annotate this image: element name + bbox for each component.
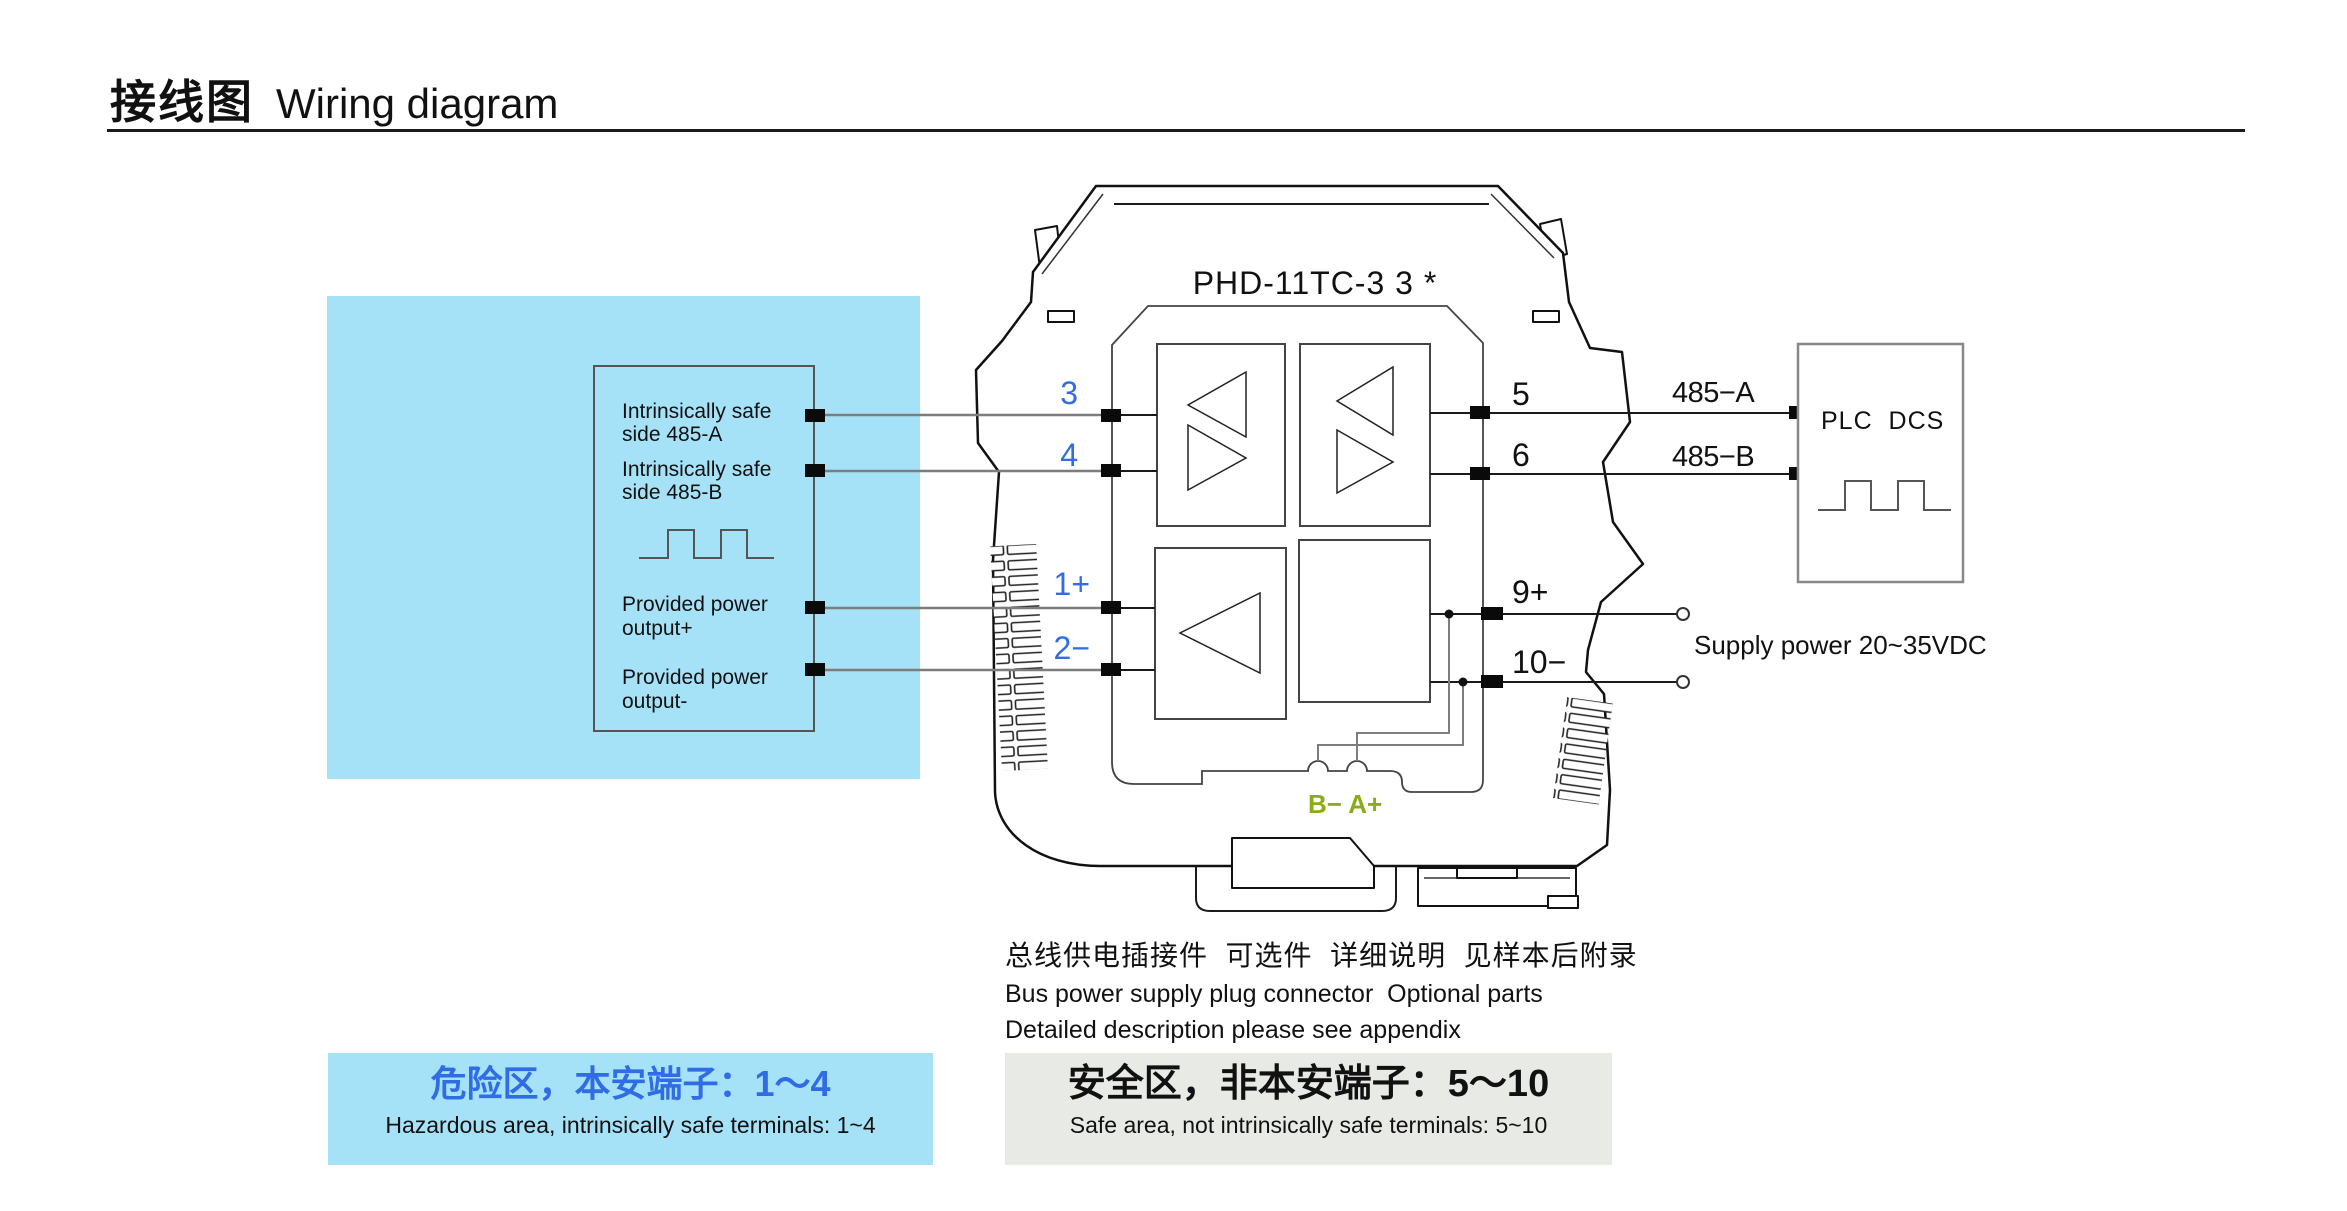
terminal-label-1plus: 1+ bbox=[1054, 566, 1090, 602]
din-latch-foot bbox=[1548, 896, 1578, 908]
supply-minus-connector-icon bbox=[1677, 676, 1689, 688]
terminal-4 bbox=[1101, 464, 1121, 477]
field-terminal-485a bbox=[805, 409, 825, 422]
device-model-label: PHD-11TC-3 3 * bbox=[1193, 265, 1438, 301]
housing-right-clip bbox=[1533, 311, 1559, 322]
bus-plug-connector bbox=[1232, 838, 1374, 888]
field-terminal-plus bbox=[805, 601, 825, 614]
terminal-6 bbox=[1470, 467, 1490, 480]
supply-plus-connector-icon bbox=[1677, 608, 1689, 620]
terminal-3 bbox=[1101, 409, 1121, 422]
note-en-line1: Bus power supply plug connector Optional… bbox=[1005, 976, 1638, 1012]
isolator-channel-1-box bbox=[1157, 344, 1285, 526]
junction-dot bbox=[1459, 678, 1468, 687]
wire-label-485b: 485−B bbox=[1672, 441, 1754, 473]
terminal-label-4: 4 bbox=[1060, 437, 1078, 473]
terminal-label-6: 6 bbox=[1512, 437, 1530, 473]
field-terminal-485b bbox=[805, 464, 825, 477]
safe-zone-label: 安全区，非本安端子：5～10 Safe area, not intrinsica… bbox=[1005, 1053, 1612, 1165]
field-label-485a-line2: side 485-A bbox=[622, 423, 722, 446]
isolator-channel-3-box bbox=[1155, 548, 1286, 719]
hazardous-zone-label: 危险区，本安端子：1～4 Hazardous area, intrinsical… bbox=[328, 1053, 933, 1165]
isolator-channel-2-box bbox=[1300, 344, 1430, 526]
terminal-label-10minus: 10− bbox=[1512, 644, 1566, 680]
housing-left-clip bbox=[1048, 311, 1074, 322]
terminal-label-5: 5 bbox=[1512, 376, 1530, 412]
field-label-485b-line2: side 485-B bbox=[622, 481, 722, 504]
field-label-485b-line1: Intrinsically safe bbox=[622, 458, 771, 481]
terminal-label-9plus: 9+ bbox=[1512, 574, 1548, 610]
wire-label-485a: 485−A bbox=[1672, 377, 1755, 409]
safe-zone-zh: 安全区，非本安端子：5～10 bbox=[1005, 1058, 1612, 1110]
plc-dcs-label: PLC DCS bbox=[1821, 407, 1944, 435]
device-circuit bbox=[1112, 306, 1483, 792]
safe-zone-en: Safe area, not intrinsically safe termin… bbox=[1005, 1110, 1612, 1140]
terminal-label-3: 3 bbox=[1060, 375, 1078, 411]
terminal-10 bbox=[1481, 675, 1503, 688]
field-label-powerplus-line2: output+ bbox=[622, 617, 693, 640]
bus-connector-note: 总线供电插接件 可选件 详细说明 见样本后附录 Bus power supply… bbox=[1005, 936, 1638, 1048]
note-en-line2: Detailed description please see appendix bbox=[1005, 1012, 1638, 1048]
bus-terminal-label: B− A+ bbox=[1308, 789, 1382, 819]
terminal-label-2minus: 2− bbox=[1054, 630, 1090, 666]
terminal-1 bbox=[1101, 601, 1121, 614]
supply-power-label: Supply power 20~35VDC bbox=[1694, 630, 1987, 660]
power-module-box bbox=[1299, 540, 1430, 702]
hazardous-zone-zh: 危险区，本安端子：1～4 bbox=[328, 1058, 933, 1110]
field-terminal-minus bbox=[805, 663, 825, 676]
field-label-powerplus-line1: Provided power bbox=[622, 593, 768, 616]
note-zh: 总线供电插接件 可选件 详细说明 见样本后附录 bbox=[1005, 936, 1638, 976]
terminal-9 bbox=[1481, 607, 1503, 620]
hazardous-area: Intrinsically safe side 485-A Intrinsica… bbox=[327, 296, 920, 779]
plc-dcs-box bbox=[1798, 344, 1963, 582]
junction-dot bbox=[1445, 610, 1454, 619]
din-latch-recess bbox=[1457, 868, 1517, 878]
field-label-powerminus-line1: Provided power bbox=[622, 666, 768, 689]
plc-dcs-unit: PLC DCS bbox=[1798, 344, 1963, 582]
field-label-powerminus-line2: output- bbox=[622, 690, 687, 713]
terminal-2 bbox=[1101, 663, 1121, 676]
hazardous-zone-en: Hazardous area, intrinsically safe termi… bbox=[328, 1110, 933, 1140]
terminal-5 bbox=[1470, 406, 1490, 419]
field-label-485a-line1: Intrinsically safe bbox=[622, 400, 771, 423]
